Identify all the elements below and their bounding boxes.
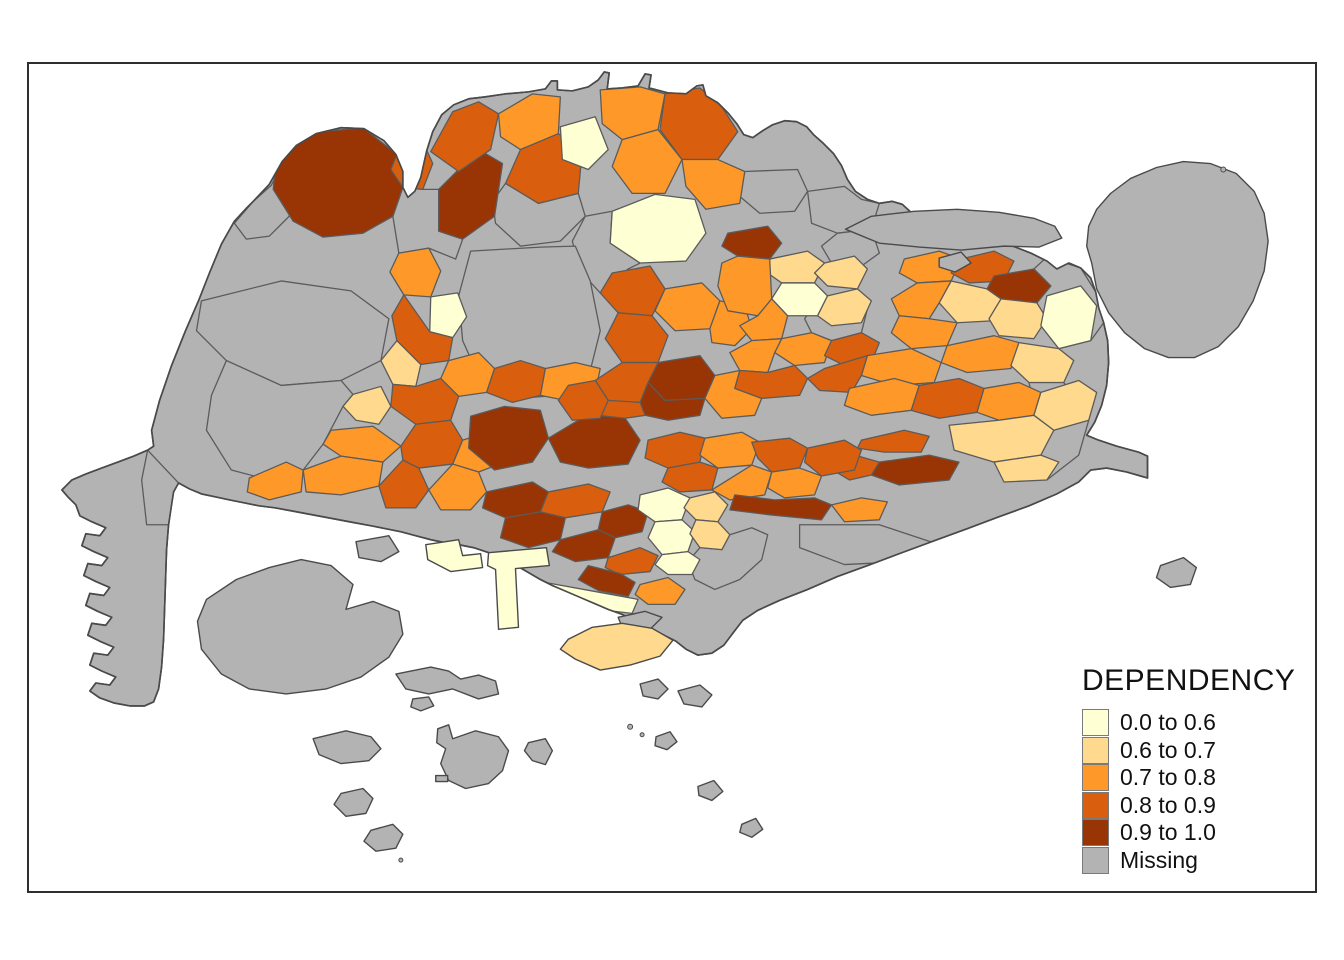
legend-item: 0.7 to 0.8 xyxy=(1082,764,1295,792)
legend-swatch-c2 xyxy=(1082,764,1109,791)
island-jurong-island xyxy=(197,560,402,694)
island-south-island xyxy=(411,697,434,711)
island-south-island xyxy=(740,818,763,837)
island-south-island xyxy=(678,685,712,707)
islet-dot xyxy=(399,858,403,862)
figure-canvas: { "legend": { "title": "DEPENDENCY", "it… xyxy=(0,0,1344,960)
legend-item: Missing xyxy=(1082,847,1295,875)
subzone-c2 xyxy=(718,256,772,316)
island-south-island xyxy=(436,776,448,782)
legend-swatch-missing xyxy=(1082,847,1109,874)
island-south-island xyxy=(655,732,677,750)
island-se-islet xyxy=(1156,558,1196,588)
legend-label: Missing xyxy=(1120,847,1198,874)
legend-item: 0.8 to 0.9 xyxy=(1082,792,1295,820)
legend-label: 0.7 to 0.8 xyxy=(1120,764,1216,791)
legend-swatch-c0 xyxy=(1082,709,1109,736)
legend-label: 0.9 to 1.0 xyxy=(1120,819,1216,846)
legend-title: DEPENDENCY xyxy=(1082,664,1295,698)
island-jurong-islet xyxy=(356,536,399,562)
legend-swatch-c1 xyxy=(1082,737,1109,764)
subzone-c3 xyxy=(911,378,984,418)
island-south-island xyxy=(364,824,403,851)
islet-dot xyxy=(640,733,644,737)
island-south-island xyxy=(313,731,381,764)
legend-label: 0.0 to 0.6 xyxy=(1120,709,1216,736)
island-south-island xyxy=(334,788,373,816)
overlay-port-pier-main xyxy=(488,548,550,630)
island-south-island xyxy=(524,739,552,765)
legend-label: 0.8 to 0.9 xyxy=(1120,792,1216,819)
island-south-island xyxy=(640,679,668,699)
legend-swatch-c3 xyxy=(1082,792,1109,819)
subzone-c1 xyxy=(989,299,1047,339)
legend-items: 0.0 to 0.60.6 to 0.70.7 to 0.80.8 to 0.9… xyxy=(1082,709,1295,874)
subzone-c2 xyxy=(768,468,822,498)
legend-swatch-c4 xyxy=(1082,819,1109,846)
islet-dot xyxy=(1221,167,1226,172)
map-frame: DEPENDENCY 0.0 to 0.60.6 to 0.70.7 to 0.… xyxy=(27,62,1317,893)
legend-item: 0.9 to 1.0 xyxy=(1082,819,1295,847)
legend: DEPENDENCY 0.0 to 0.60.6 to 0.70.7 to 0.… xyxy=(1082,664,1295,874)
legend-item: 0.0 to 0.6 xyxy=(1082,709,1295,737)
island-tekong xyxy=(1087,162,1268,358)
legend-label: 0.6 to 0.7 xyxy=(1120,737,1216,764)
island-south-island xyxy=(698,781,723,801)
subzone-c2 xyxy=(977,382,1041,420)
island-south-island xyxy=(396,667,499,699)
islet-dot xyxy=(628,724,633,729)
subzone-c4 xyxy=(273,128,403,237)
legend-item: 0.6 to 0.7 xyxy=(1082,737,1295,765)
overlay-sentosa xyxy=(560,623,673,670)
